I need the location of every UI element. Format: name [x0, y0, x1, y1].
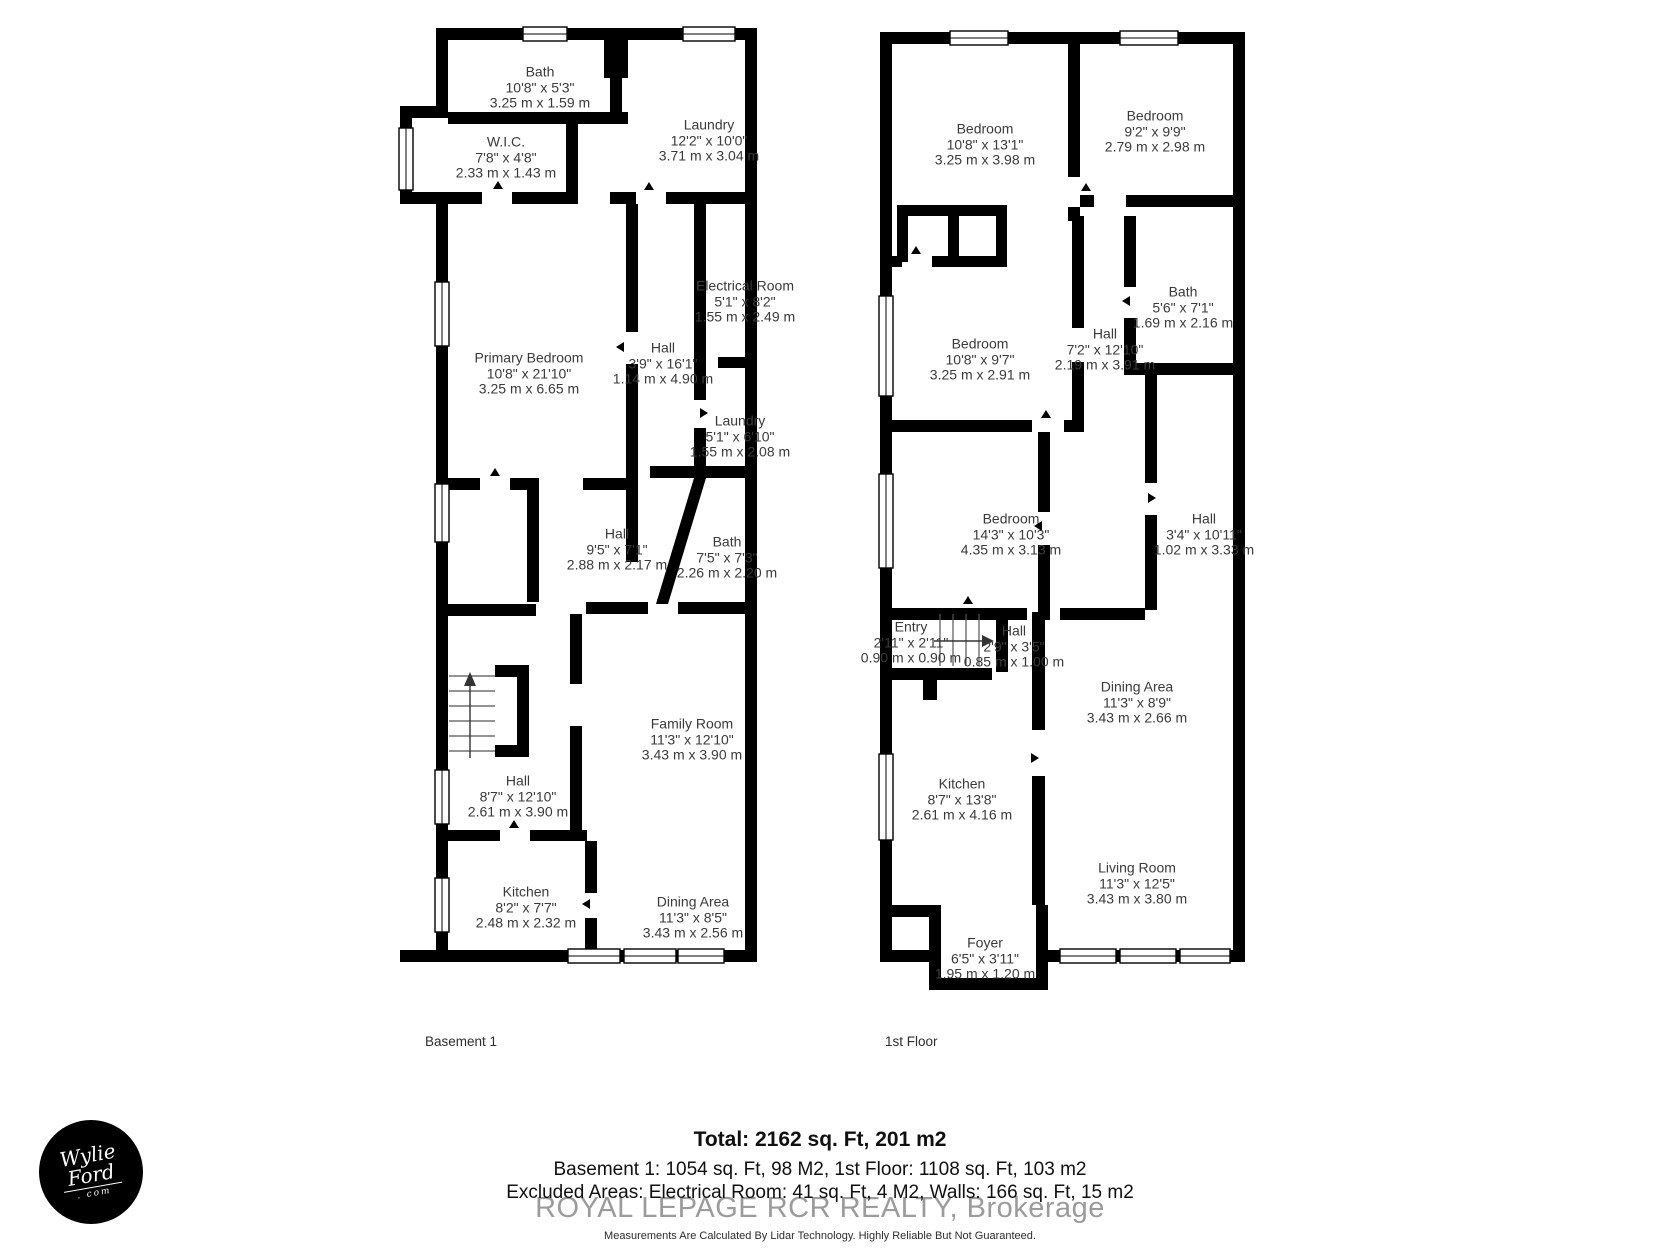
room-label: Electrical Room 5'1" x 8'2" 1.55 m x 2.4… — [695, 279, 795, 326]
room-label: Hall 2'9" x 3'5" 0.85 m x 1.00 m — [964, 624, 1064, 671]
room-label: Hall 7'2" x 12'10" 2.19 m x 3.91 m — [1055, 327, 1155, 374]
basement-stairs — [449, 676, 495, 751]
room-label: Entry 2'11" x 2'11" 0.90 m x 0.90 m — [861, 620, 961, 667]
room-label: Primary Bedroom 10'8" x 21'10" 3.25 m x … — [475, 351, 584, 398]
floor-plan-canvas: Bath 10'8" x 5'3" 3.25 m x 1.59 m W.I.C.… — [0, 0, 1680, 1260]
wylie-ford-logo: Wylie Ford . com — [39, 1120, 143, 1224]
total-area-line: Total: 2162 sq. Ft, 201 m2 — [694, 1128, 947, 1152]
room-label: Hall 3'4" x 10'11" 1.02 m x 3.33 m — [1154, 512, 1254, 559]
room-label: Bedroom 14'3" x 10'3" 4.35 m x 3.13 m — [961, 512, 1061, 559]
room-label: Bath 10'8" x 5'3" 3.25 m x 1.59 m — [490, 65, 590, 112]
floor-plan-walls — [0, 0, 1680, 1260]
room-label: Living Room 11'3" x 12'5" 3.43 m x 3.80 … — [1087, 861, 1187, 908]
room-label: Dining Area 11'3" x 8'5" 3.43 m x 2.56 m — [643, 895, 743, 942]
room-label: Bath 5'6" x 7'1" 1.69 m x 2.16 m — [1133, 285, 1233, 332]
excluded-areas-line: Excluded Areas: Electrical Room: 41 sq. … — [506, 1182, 1134, 1204]
wylie-ford-logo-text: Wylie Ford . com — [57, 1140, 125, 1204]
room-label: Laundry 5'1" x 6'10" 1.55 m x 2.08 m — [690, 414, 790, 461]
room-label: Family Room 11'3" x 12'10" 3.43 m x 3.90… — [642, 717, 742, 764]
room-label: Kitchen 8'7" x 13'8" 2.61 m x 4.16 m — [912, 777, 1012, 824]
room-label: Hall 8'7" x 12'10" 2.61 m x 3.90 m — [468, 774, 568, 821]
room-label: Bath 7'5" x 7'3" 2.26 m x 2.20 m — [677, 535, 777, 582]
room-label: Foyer 6'5" x 3'11" 1.95 m x 1.20 m — [935, 936, 1035, 983]
room-label: Dining Area 11'3" x 8'9" 3.43 m x 2.66 m — [1087, 680, 1187, 727]
room-label: Bedroom 10'8" x 13'1" 3.25 m x 3.98 m — [935, 122, 1035, 169]
room-label: Bedroom 10'8" x 9'7" 3.25 m x 2.91 m — [930, 337, 1030, 384]
room-label: Laundry 12'2" x 10'0" 3.71 m x 3.04 m — [659, 118, 759, 165]
room-label: W.I.C. 7'8" x 4'8" 2.33 m x 1.43 m — [456, 135, 556, 182]
room-label: Kitchen 8'2" x 7'7" 2.48 m x 2.32 m — [476, 885, 576, 932]
measurement-disclaimer: Measurements Are Calculated By Lidar Tec… — [604, 1230, 1036, 1242]
room-label: Bedroom 9'2" x 9'9" 2.79 m x 2.98 m — [1105, 109, 1205, 156]
basement-floor-title: Basement 1 — [425, 1034, 497, 1049]
first-floor-title: 1st Floor — [885, 1034, 938, 1049]
room-label: Hall 9'5" x 7'1" 2.88 m x 2.17 m — [567, 527, 667, 574]
room-label: Hall 3'9" x 16'1" 1.14 m x 4.90 m — [613, 341, 713, 388]
floor-areas-line: Basement 1: 1054 sq. Ft, 98 M2, 1st Floo… — [554, 1159, 1087, 1181]
